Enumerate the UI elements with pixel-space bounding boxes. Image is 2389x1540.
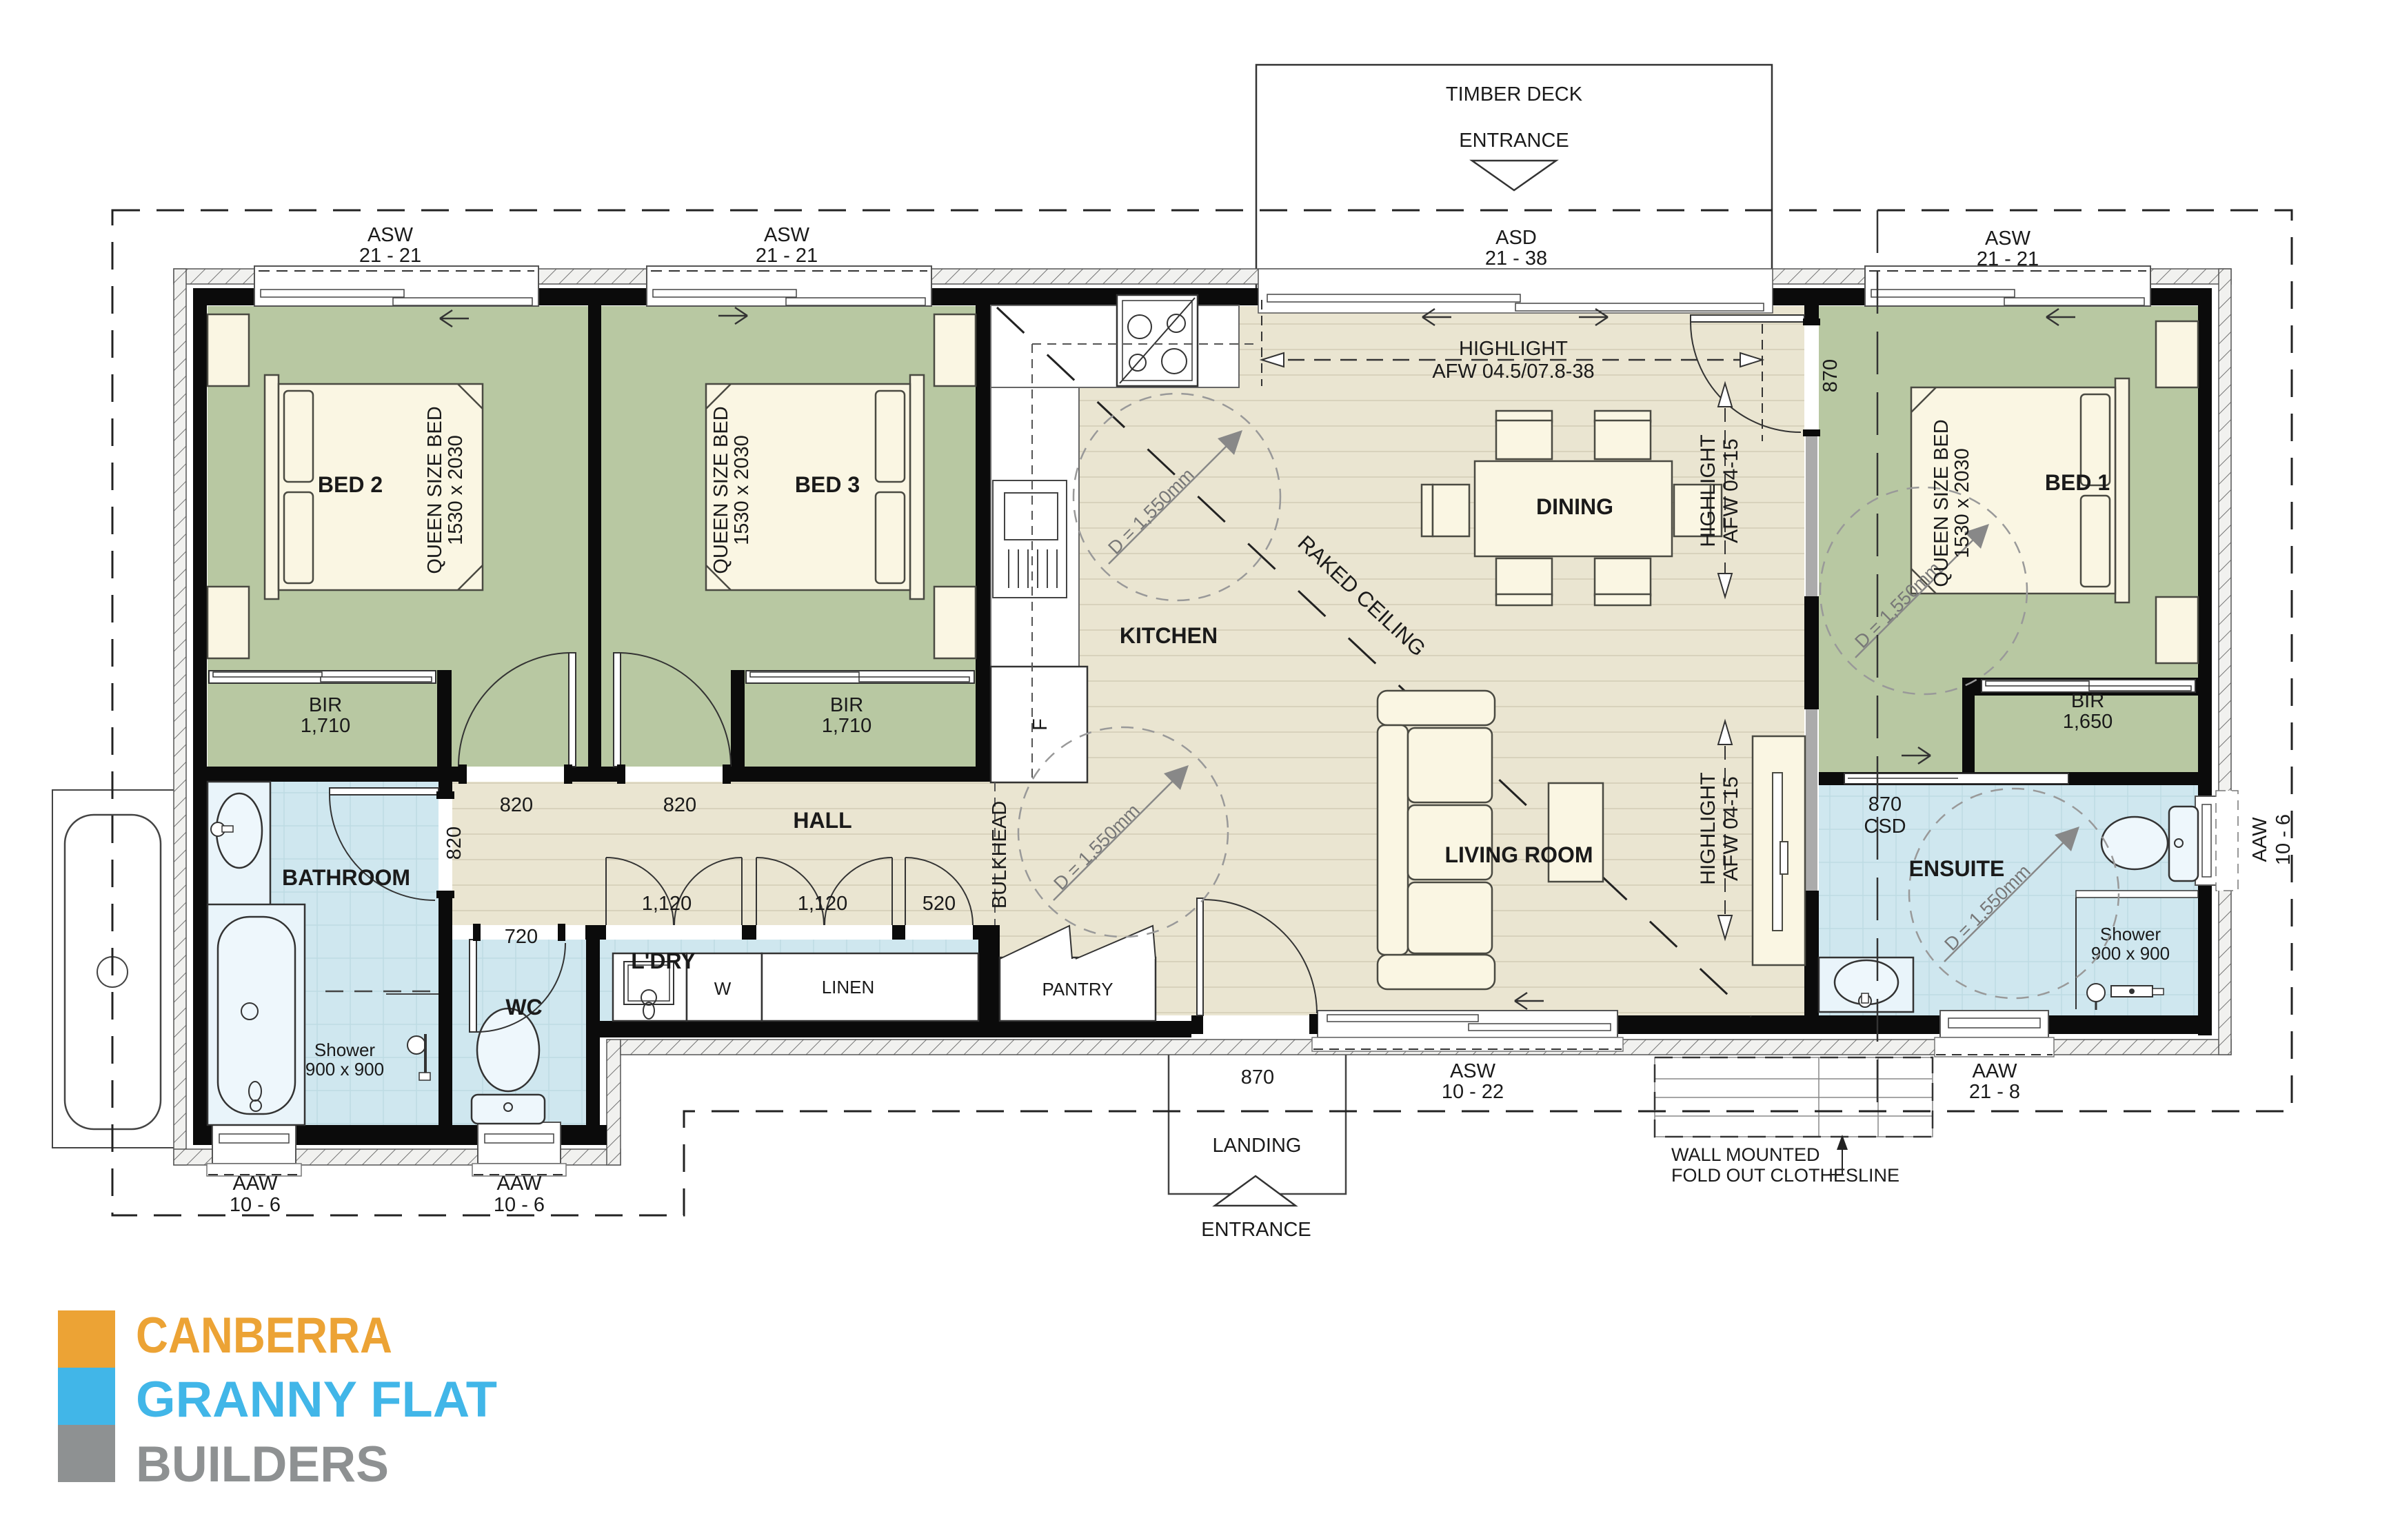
svg-text:820: 820	[663, 794, 696, 816]
svg-text:CANBERRA: CANBERRA	[136, 1308, 392, 1364]
svg-text:WALL MOUNTED: WALL MOUNTED	[1671, 1144, 1820, 1165]
svg-text:AFW 04-15: AFW 04-15	[1720, 776, 1742, 881]
svg-text:BIR: BIR	[2071, 690, 2104, 712]
svg-text:1,120: 1,120	[642, 893, 692, 915]
svg-text:ASW: ASW	[764, 224, 810, 246]
svg-text:1,650: 1,650	[2063, 711, 2113, 733]
svg-text:AAW: AAW	[1973, 1060, 2018, 1082]
svg-text:QUEEN SIZE BED: QUEEN SIZE BED	[424, 406, 446, 574]
svg-text:WC: WC	[505, 995, 542, 1020]
svg-text:ENTRANCE: ENTRANCE	[1201, 1219, 1311, 1241]
svg-text:1530 x 2030: 1530 x 2030	[445, 435, 467, 545]
svg-text:870: 870	[1241, 1066, 1274, 1088]
svg-text:900 x 900: 900 x 900	[2091, 943, 2170, 964]
svg-text:ASW: ASW	[367, 224, 414, 246]
svg-text:ASW: ASW	[1985, 227, 2031, 250]
svg-text:BULKHEAD: BULKHEAD	[989, 801, 1011, 909]
svg-text:900 x 900: 900 x 900	[305, 1059, 384, 1080]
svg-text:1530 x 2030: 1530 x 2030	[1951, 448, 1973, 558]
svg-text:21 - 8: 21 - 8	[1969, 1081, 2020, 1103]
svg-text:AAW: AAW	[497, 1173, 543, 1195]
svg-text:21 - 38: 21 - 38	[1485, 247, 1547, 270]
svg-text:ASD: ASD	[1495, 227, 1537, 249]
svg-text:ENSUITE: ENSUITE	[1909, 856, 2005, 881]
svg-text:BIR: BIR	[309, 694, 342, 716]
svg-text:FOLD OUT CLOTHESLINE: FOLD OUT CLOTHESLINE	[1671, 1165, 1899, 1186]
svg-text:BUILDERS: BUILDERS	[136, 1437, 389, 1492]
svg-text:CSD: CSD	[1864, 815, 1906, 838]
svg-text:Shower: Shower	[2100, 924, 2161, 944]
svg-text:PANTRY: PANTRY	[1042, 979, 1113, 1000]
svg-text:820: 820	[500, 794, 533, 816]
svg-text:BATHROOM: BATHROOM	[282, 865, 410, 890]
svg-text:TIMBER DECK: TIMBER DECK	[1446, 83, 1583, 105]
svg-text:BIR: BIR	[830, 694, 863, 716]
svg-text:DINING: DINING	[1536, 494, 1613, 519]
svg-text:870: 870	[1868, 793, 1902, 815]
svg-text:10 - 22: 10 - 22	[1442, 1081, 1504, 1103]
svg-text:720: 720	[505, 926, 538, 948]
svg-text:21 - 21: 21 - 21	[756, 245, 818, 267]
svg-text:HIGHLIGHT: HIGHLIGHT	[1697, 772, 1720, 884]
svg-text:10 - 6: 10 - 6	[230, 1194, 281, 1216]
svg-text:HALL: HALL	[793, 808, 851, 833]
svg-text:1,710: 1,710	[822, 715, 872, 737]
svg-text:10 - 6: 10 - 6	[494, 1194, 545, 1216]
svg-text:1530 x 2030: 1530 x 2030	[731, 435, 753, 545]
svg-text:21 - 21: 21 - 21	[1977, 248, 2039, 270]
svg-text:LANDING: LANDING	[1213, 1135, 1302, 1157]
svg-text:W: W	[714, 978, 732, 999]
svg-text:BED 2: BED 2	[318, 472, 383, 497]
svg-text:870: 870	[1820, 359, 1842, 392]
svg-text:Shower: Shower	[314, 1040, 375, 1060]
svg-text:BED 1: BED 1	[2045, 470, 2110, 495]
svg-text:AFW 04-15: AFW 04-15	[1720, 438, 1742, 543]
svg-text:HIGHLIGHT: HIGHLIGHT	[1459, 338, 1568, 360]
svg-text:LINEN: LINEN	[822, 977, 875, 997]
svg-text:21 - 21: 21 - 21	[359, 245, 421, 267]
svg-text:520: 520	[923, 893, 956, 915]
svg-text:1,120: 1,120	[798, 893, 848, 915]
svg-text:AAW: AAW	[233, 1173, 279, 1195]
svg-text:820: 820	[443, 827, 465, 860]
svg-text:ENTRANCE: ENTRANCE	[1459, 130, 1569, 152]
svg-text:QUEEN SIZE BED: QUEEN SIZE BED	[1931, 419, 1953, 587]
svg-text:L'DRY: L'DRY	[631, 949, 696, 973]
svg-text:LIVING ROOM: LIVING ROOM	[1444, 842, 1593, 867]
svg-text:GRANNY FLAT: GRANNY FLAT	[136, 1372, 497, 1428]
svg-text:ASW: ASW	[1450, 1060, 1496, 1082]
svg-text:AFW 04.5/07.8-38: AFW 04.5/07.8-38	[1432, 361, 1594, 383]
svg-text:KITCHEN: KITCHEN	[1120, 623, 1218, 648]
svg-text:BED 3: BED 3	[795, 472, 860, 497]
svg-text:QUEEN SIZE BED: QUEEN SIZE BED	[710, 406, 732, 574]
svg-text:AAW: AAW	[2249, 817, 2271, 862]
svg-text:1,710: 1,710	[301, 715, 351, 737]
svg-text:HIGHLIGHT: HIGHLIGHT	[1697, 434, 1720, 547]
